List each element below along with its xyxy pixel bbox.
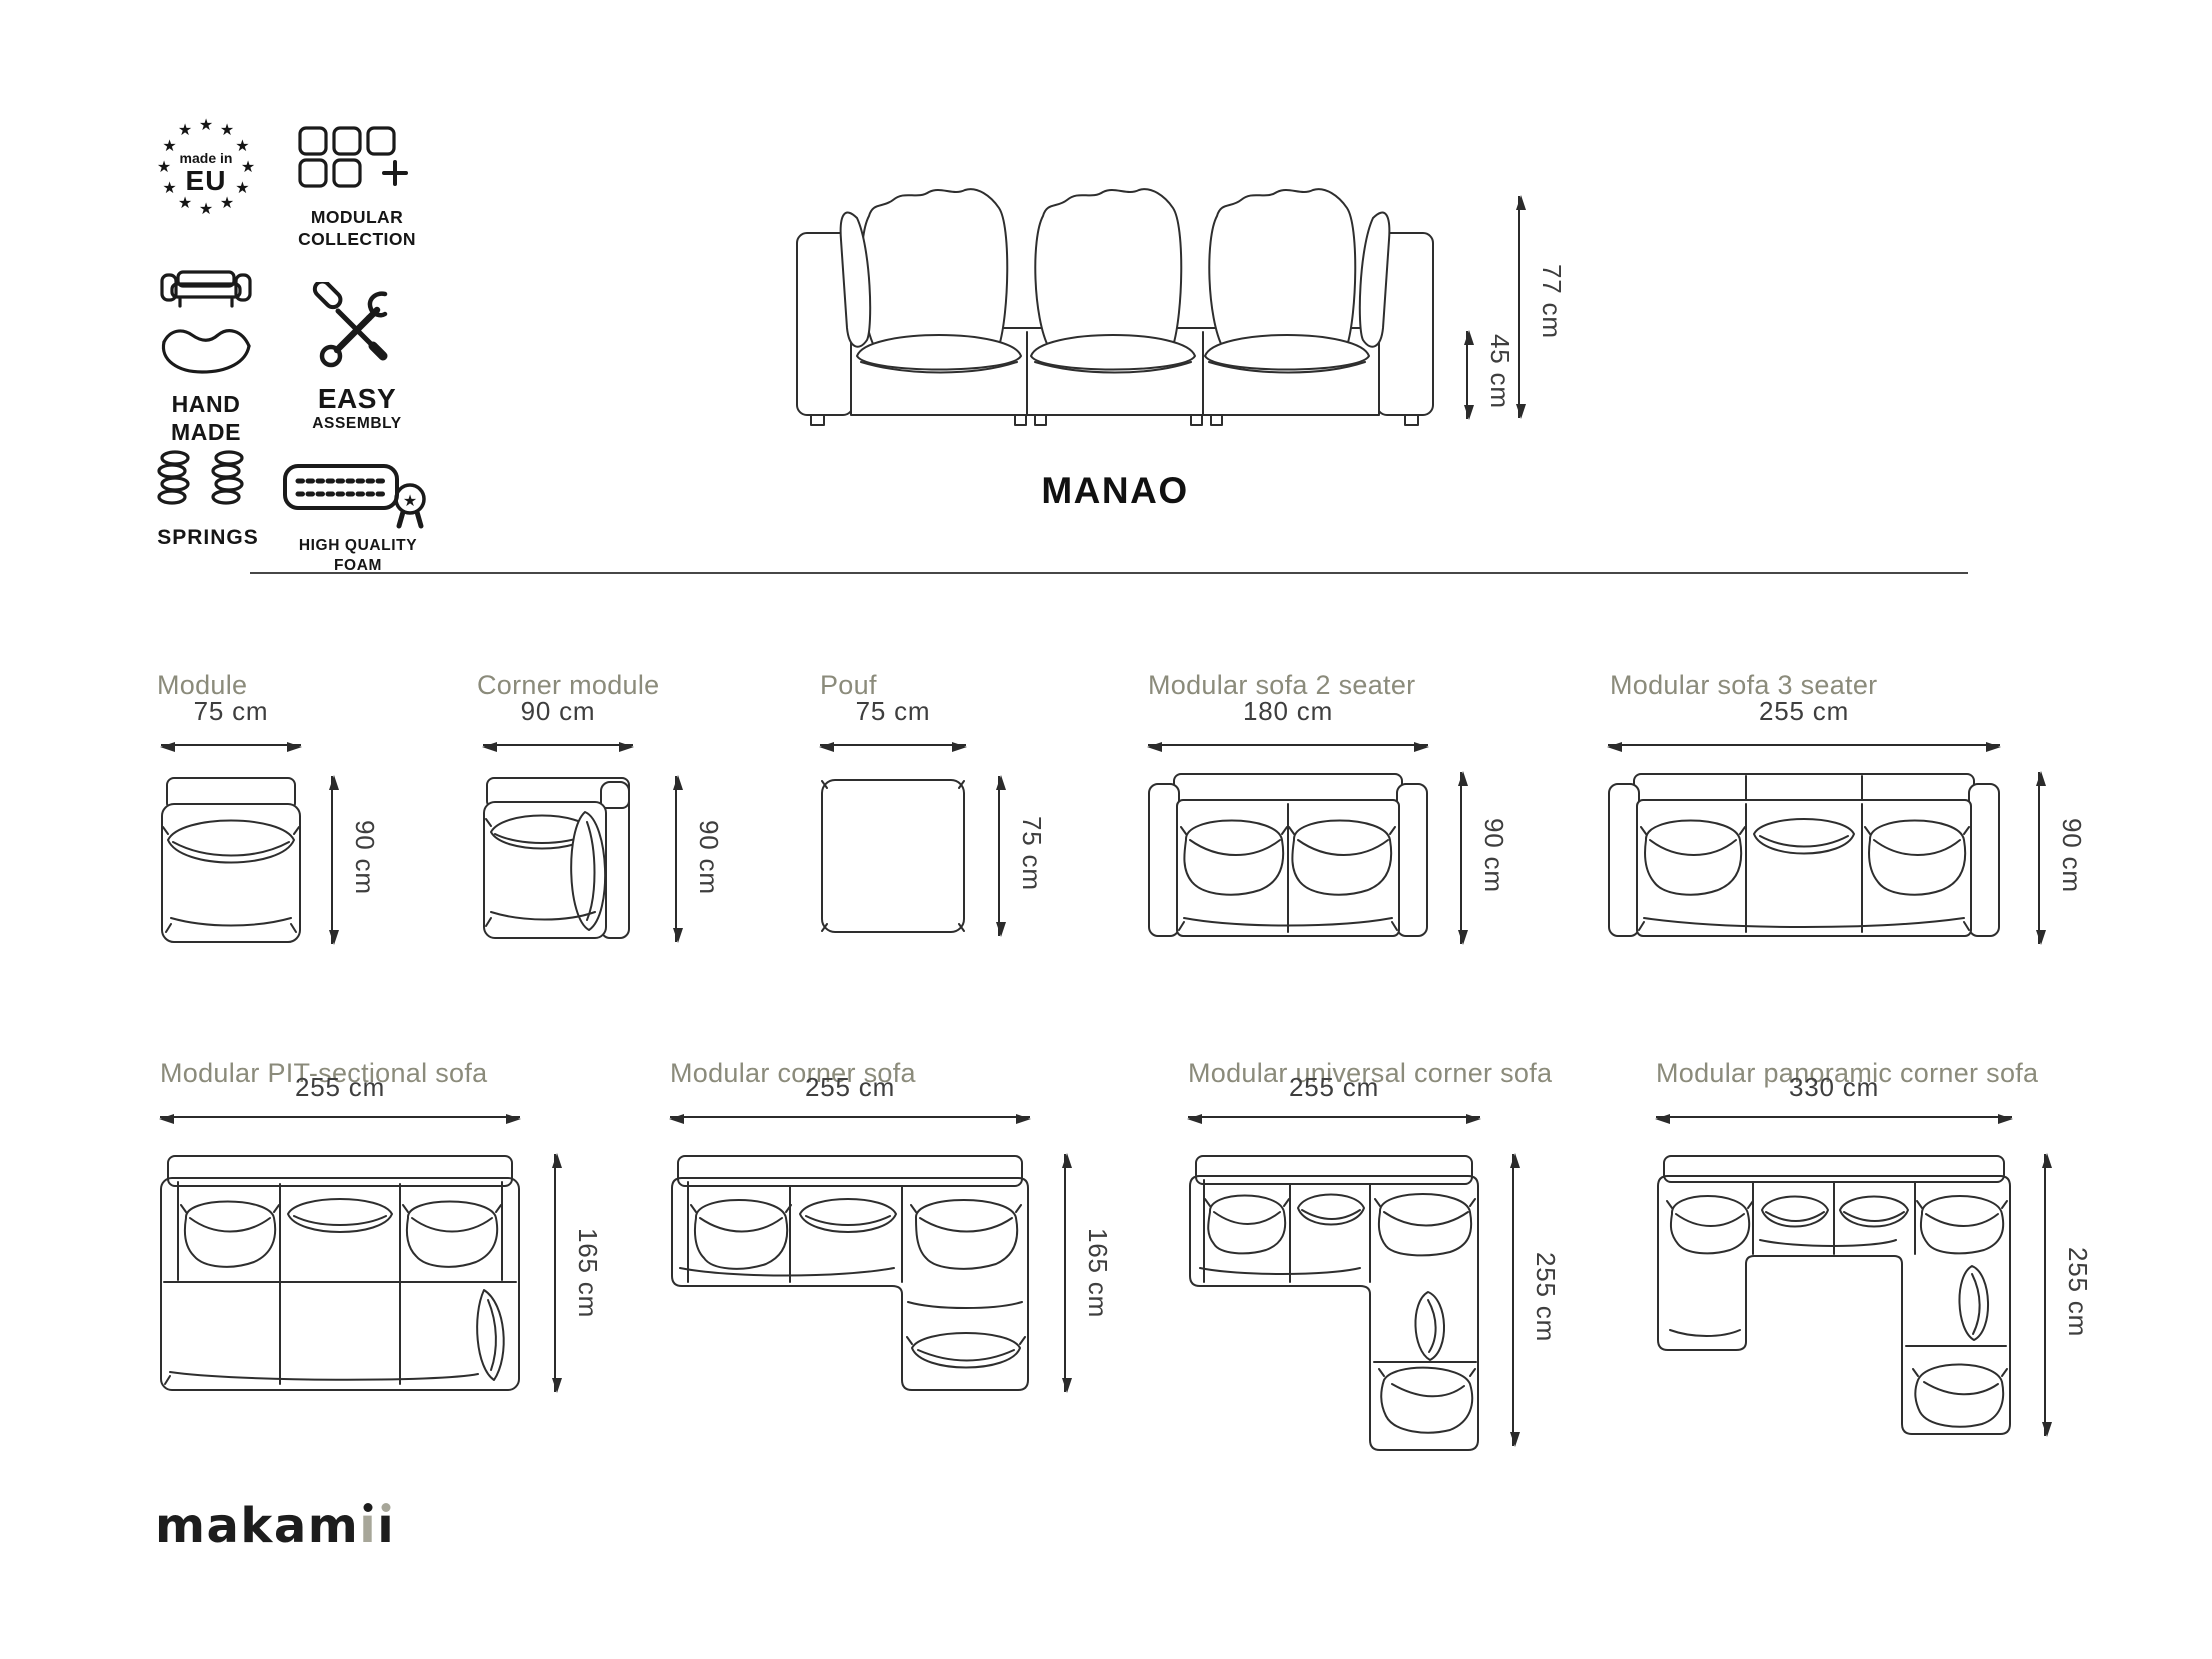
- width-dimension-arrow: [820, 744, 966, 746]
- width-dimension-arrow: [483, 744, 633, 746]
- section-divider: [250, 572, 1968, 574]
- made-in-eu-icon: ★★★ ★★★ ★★★ ★★★ made in EU: [150, 114, 262, 230]
- width-dimension-label: 180 cm: [1148, 696, 1428, 727]
- product-card-pit-sectional: Modular PIT-sectional sofa 255 cm 165 cm: [158, 1028, 618, 1448]
- depth-dimension-arrow: [675, 776, 677, 942]
- depth-dimension-label: 255 cm: [1530, 1252, 1561, 1342]
- width-dimension-arrow: [1148, 744, 1428, 746]
- easy-assembly-icon: [309, 282, 405, 376]
- overall-height-label: 77 cm: [1536, 264, 1567, 339]
- product-card-sofa-2-seater: Modular sofa 2 seater 180 cm 90 cm: [1146, 640, 1526, 980]
- width-dimension-label: 75 cm: [820, 696, 966, 727]
- springs-icon: [156, 450, 260, 508]
- hand-made-icon: [156, 270, 256, 382]
- module-top-view-drawing: [161, 776, 301, 944]
- depth-dimension-arrow: [1064, 1154, 1066, 1392]
- pouf-top-view-drawing: [820, 776, 966, 936]
- depth-dimension-label: 255 cm: [2062, 1247, 2093, 1337]
- width-dimension-arrow: [1188, 1116, 1480, 1118]
- width-dimension-label: 255 cm: [160, 1072, 520, 1103]
- badge-label: EASY: [300, 384, 414, 414]
- width-dimension-label: 255 cm: [1188, 1072, 1480, 1103]
- corner-sofa-top-view-drawing: [670, 1154, 1030, 1392]
- product-card-corner-sofa: Modular corner sofa 255 cm 165 cm: [668, 1028, 1128, 1448]
- svg-text:★: ★: [199, 199, 213, 218]
- badge-label: COLLECTION: [296, 228, 418, 250]
- depth-dimension-arrow: [2044, 1154, 2046, 1436]
- manao-spec-sheet: ★★★ ★★★ ★★★ ★★★ made in EU MODULAR COLLE…: [0, 0, 2212, 1659]
- depth-dimension-arrow: [1460, 772, 1462, 944]
- brand-logo-text: makam: [155, 1498, 359, 1554]
- product-card-universal-corner-sofa: Modular universal corner sofa 255 cm 25: [1186, 1028, 1606, 1498]
- badge-label: ASSEMBLY: [300, 414, 414, 434]
- width-dimension-arrow: [160, 1116, 520, 1118]
- width-dimension-label: 90 cm: [483, 696, 633, 727]
- sofa-3-seater-top-view-drawing: [1608, 772, 2000, 944]
- brand-logo: makamıı: [155, 1502, 395, 1550]
- logo-dot-gray: [382, 1503, 391, 1512]
- depth-dimension-label: 165 cm: [1082, 1228, 1113, 1318]
- depth-dimension-arrow: [554, 1154, 556, 1392]
- sofa-2-seater-top-view-drawing: [1148, 772, 1428, 944]
- badge-hand-made: HAND MADE: [148, 270, 264, 446]
- brand-logo-i1: ı: [359, 1502, 377, 1550]
- badge-label: SPRINGS: [152, 524, 264, 552]
- product-card-sofa-3-seater: Modular sofa 3 seater 255 cm 90 cm: [1608, 640, 2108, 980]
- product-card-corner-module: Corner module 90 cm 90 cm: [475, 640, 735, 980]
- badge-label: MADE: [148, 418, 264, 446]
- width-dimension-arrow: [1608, 744, 2000, 746]
- svg-text:★: ★: [235, 178, 249, 197]
- svg-text:★: ★: [157, 157, 171, 176]
- svg-text:★: ★: [162, 136, 176, 155]
- depth-dimension-label: 90 cm: [1478, 818, 1509, 893]
- svg-text:★: ★: [241, 157, 255, 176]
- depth-dimension-label: 165 cm: [572, 1228, 603, 1318]
- depth-dimension-label: 90 cm: [693, 820, 724, 895]
- product-card-module: Module 75 cm 90 cm: [155, 640, 395, 980]
- width-dimension-arrow: [161, 744, 301, 746]
- width-dimension-label: 255 cm: [670, 1072, 1030, 1103]
- depth-dimension-arrow: [998, 776, 1000, 936]
- svg-text:★: ★: [178, 120, 192, 139]
- svg-text:★: ★: [162, 178, 176, 197]
- universal-corner-sofa-top-view-drawing: [1188, 1154, 1480, 1452]
- badge-made-in-eu: ★★★ ★★★ ★★★ ★★★ made in EU: [150, 114, 262, 230]
- seat-height-arrow: [1466, 331, 1468, 419]
- svg-text:★: ★: [199, 115, 213, 134]
- made-in-label: made in: [180, 150, 233, 166]
- svg-text:★: ★: [220, 120, 234, 139]
- high-quality-foam-icon: ★: [283, 454, 433, 532]
- seat-height-label: 45 cm: [1484, 334, 1515, 409]
- sofa-front-view-drawing: [795, 178, 1435, 430]
- badge-label: MODULAR: [296, 206, 418, 228]
- badge-label: HAND: [148, 390, 264, 418]
- product-card-panoramic-corner-sofa: Modular panoramic corner sofa 330 cm: [1654, 1028, 2114, 1498]
- badge-label: HIGH QUALITY: [282, 536, 434, 556]
- width-dimension-arrow: [1656, 1116, 2012, 1118]
- overall-height-arrow: [1518, 196, 1520, 418]
- depth-dimension-arrow: [331, 776, 333, 944]
- width-dimension-label: 330 cm: [1656, 1072, 2012, 1103]
- svg-text:★: ★: [235, 136, 249, 155]
- badge-high-quality-foam: ★ HIGH QUALITY FOAM: [282, 454, 434, 576]
- depth-dimension-label: 90 cm: [2056, 818, 2087, 893]
- collection-title: MANAO: [895, 470, 1335, 512]
- product-card-pouf: Pouf 75 cm 75 cm: [818, 640, 1058, 980]
- eu-label: EU: [186, 165, 227, 196]
- depth-dimension-label: 75 cm: [1016, 816, 1047, 891]
- width-dimension-arrow: [670, 1116, 1030, 1118]
- badge-easy-assembly: EASY ASSEMBLY: [300, 282, 414, 434]
- badge-modular-collection: MODULAR COLLECTION: [296, 126, 418, 250]
- panoramic-corner-sofa-top-view-drawing: [1656, 1154, 2012, 1436]
- width-dimension-label: 75 cm: [161, 696, 301, 727]
- depth-dimension-arrow: [2038, 772, 2040, 944]
- depth-dimension-label: 90 cm: [349, 820, 380, 895]
- svg-text:★: ★: [403, 491, 417, 510]
- modular-collection-icon: [298, 126, 416, 190]
- pit-sectional-top-view-drawing: [160, 1154, 520, 1392]
- depth-dimension-arrow: [1512, 1154, 1514, 1446]
- width-dimension-label: 255 cm: [1608, 696, 2000, 727]
- badge-springs: SPRINGS: [152, 450, 264, 552]
- logo-dot-black: [364, 1503, 373, 1512]
- corner-module-top-view-drawing: [483, 776, 633, 942]
- brand-logo-i2: ı: [377, 1502, 395, 1550]
